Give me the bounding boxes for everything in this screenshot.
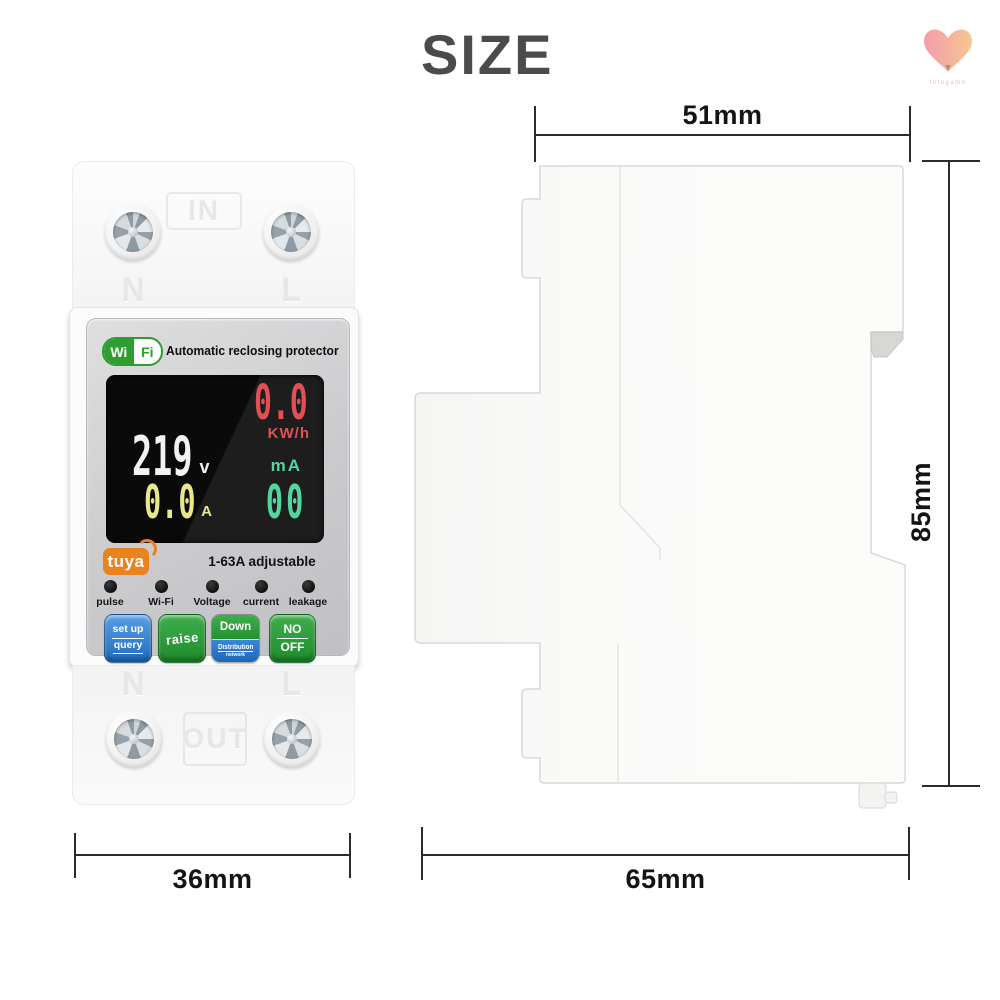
device-button-down-distribution: Down Distribution network	[211, 614, 260, 663]
screw-icon	[264, 711, 320, 767]
distribution-network-label: Distribution network	[212, 640, 259, 662]
side-body-outline	[415, 166, 905, 783]
led-icon	[302, 580, 315, 593]
energy-value: 0.0	[254, 383, 308, 424]
off-label: OFF	[281, 640, 305, 654]
product-size-diagram: SIZE fotogamo IN N L Wi Fi Automatic rec…	[0, 0, 1000, 1000]
dim-65mm-label: 65mm	[422, 864, 909, 895]
current-readout: 0.0 A	[144, 483, 212, 522]
voltage-unit: v	[200, 457, 210, 478]
screw-icon	[105, 204, 161, 260]
out-label: OUT	[182, 723, 247, 755]
led-icon	[206, 580, 219, 593]
dim-tick	[534, 106, 536, 162]
dim-36mm-label: 36mm	[75, 864, 350, 895]
indicator-leakage: leakage	[281, 580, 335, 608]
terminal-l-label: L	[271, 272, 311, 309]
terminal-n-label: N	[113, 666, 153, 703]
din-clip-nub-icon	[885, 792, 897, 803]
dim-line	[948, 161, 950, 787]
energy-unit: KW/h	[268, 425, 310, 442]
setup-label: set up	[112, 623, 145, 638]
indicator-pulse: pulse	[83, 580, 137, 608]
button-divider	[277, 638, 309, 640]
indicator-current: current	[234, 580, 288, 608]
product-name: Automatic reclosing protector	[166, 343, 339, 358]
device-button-no-off: NO OFF	[269, 614, 316, 663]
dim-line	[422, 854, 909, 856]
din-clip-wedge-icon	[871, 332, 903, 357]
query-label: query	[113, 639, 144, 654]
side-view	[400, 140, 940, 840]
terminal-l-label: L	[271, 666, 311, 703]
heart-logo-icon	[922, 28, 974, 74]
device-button-setup-query: set up query	[104, 614, 152, 663]
voltage-readout: 219 v	[132, 434, 210, 480]
rating-text: 1-63A adjustable	[198, 553, 326, 569]
led-icon	[104, 580, 117, 593]
led-icon	[255, 580, 268, 593]
dim-line	[75, 854, 350, 856]
dim-51mm-label: 51mm	[535, 100, 910, 131]
dim-tick	[909, 106, 911, 162]
screw-center	[129, 734, 139, 744]
current-unit: A	[201, 503, 212, 520]
led-icon	[155, 580, 168, 593]
wifi-logo-right: Fi	[134, 339, 161, 364]
dim-tick	[922, 160, 980, 162]
indicator-voltage: Voltage	[185, 580, 239, 608]
current-value: 0.0	[144, 483, 196, 522]
indicator-label: Wi-Fi	[134, 596, 188, 608]
indicator-label: Voltage	[185, 596, 239, 608]
indicator-label: current	[234, 596, 288, 608]
tuya-logo: tuya	[103, 548, 149, 575]
tuya-wifi-arc-icon	[137, 539, 157, 559]
watermark-text: fotogamo	[916, 80, 980, 86]
wifi-logo: Wi Fi	[102, 337, 163, 366]
screw-center	[287, 734, 297, 744]
leakage-unit: mA	[271, 456, 302, 476]
wifi-logo-left: Wi	[104, 339, 134, 364]
watermark: fotogamo	[916, 28, 980, 86]
screw-center	[128, 227, 138, 237]
din-clip-foot-icon	[859, 783, 886, 808]
device-button-raise: raise	[158, 614, 206, 663]
terminal-n-label: N	[113, 272, 153, 309]
out-terminal-plate: OUT	[183, 712, 247, 766]
network-label: network	[226, 652, 245, 658]
down-label: Down	[212, 615, 259, 640]
indicator-label: leakage	[281, 596, 335, 608]
dim-line	[535, 134, 910, 136]
lcd-display: 0.0 KW/h 219 v mA 0.0 A 00	[106, 375, 324, 543]
screw-icon	[263, 204, 319, 260]
dim-tick	[922, 785, 980, 787]
no-label: NO	[284, 622, 302, 636]
raise-label: raise	[165, 629, 199, 647]
screw-center	[286, 227, 296, 237]
indicator-wifi: Wi-Fi	[134, 580, 188, 608]
dim-85mm-label: 85mm	[906, 418, 937, 542]
voltage-value: 219	[132, 434, 192, 480]
leakage-value: 00	[265, 483, 306, 522]
screw-icon	[106, 711, 162, 767]
in-terminal-plate: IN	[166, 192, 242, 230]
indicator-label: pulse	[83, 596, 137, 608]
in-label: IN	[188, 195, 220, 227]
distribution-label: Distribution	[218, 644, 253, 652]
page-title: SIZE	[421, 22, 553, 87]
